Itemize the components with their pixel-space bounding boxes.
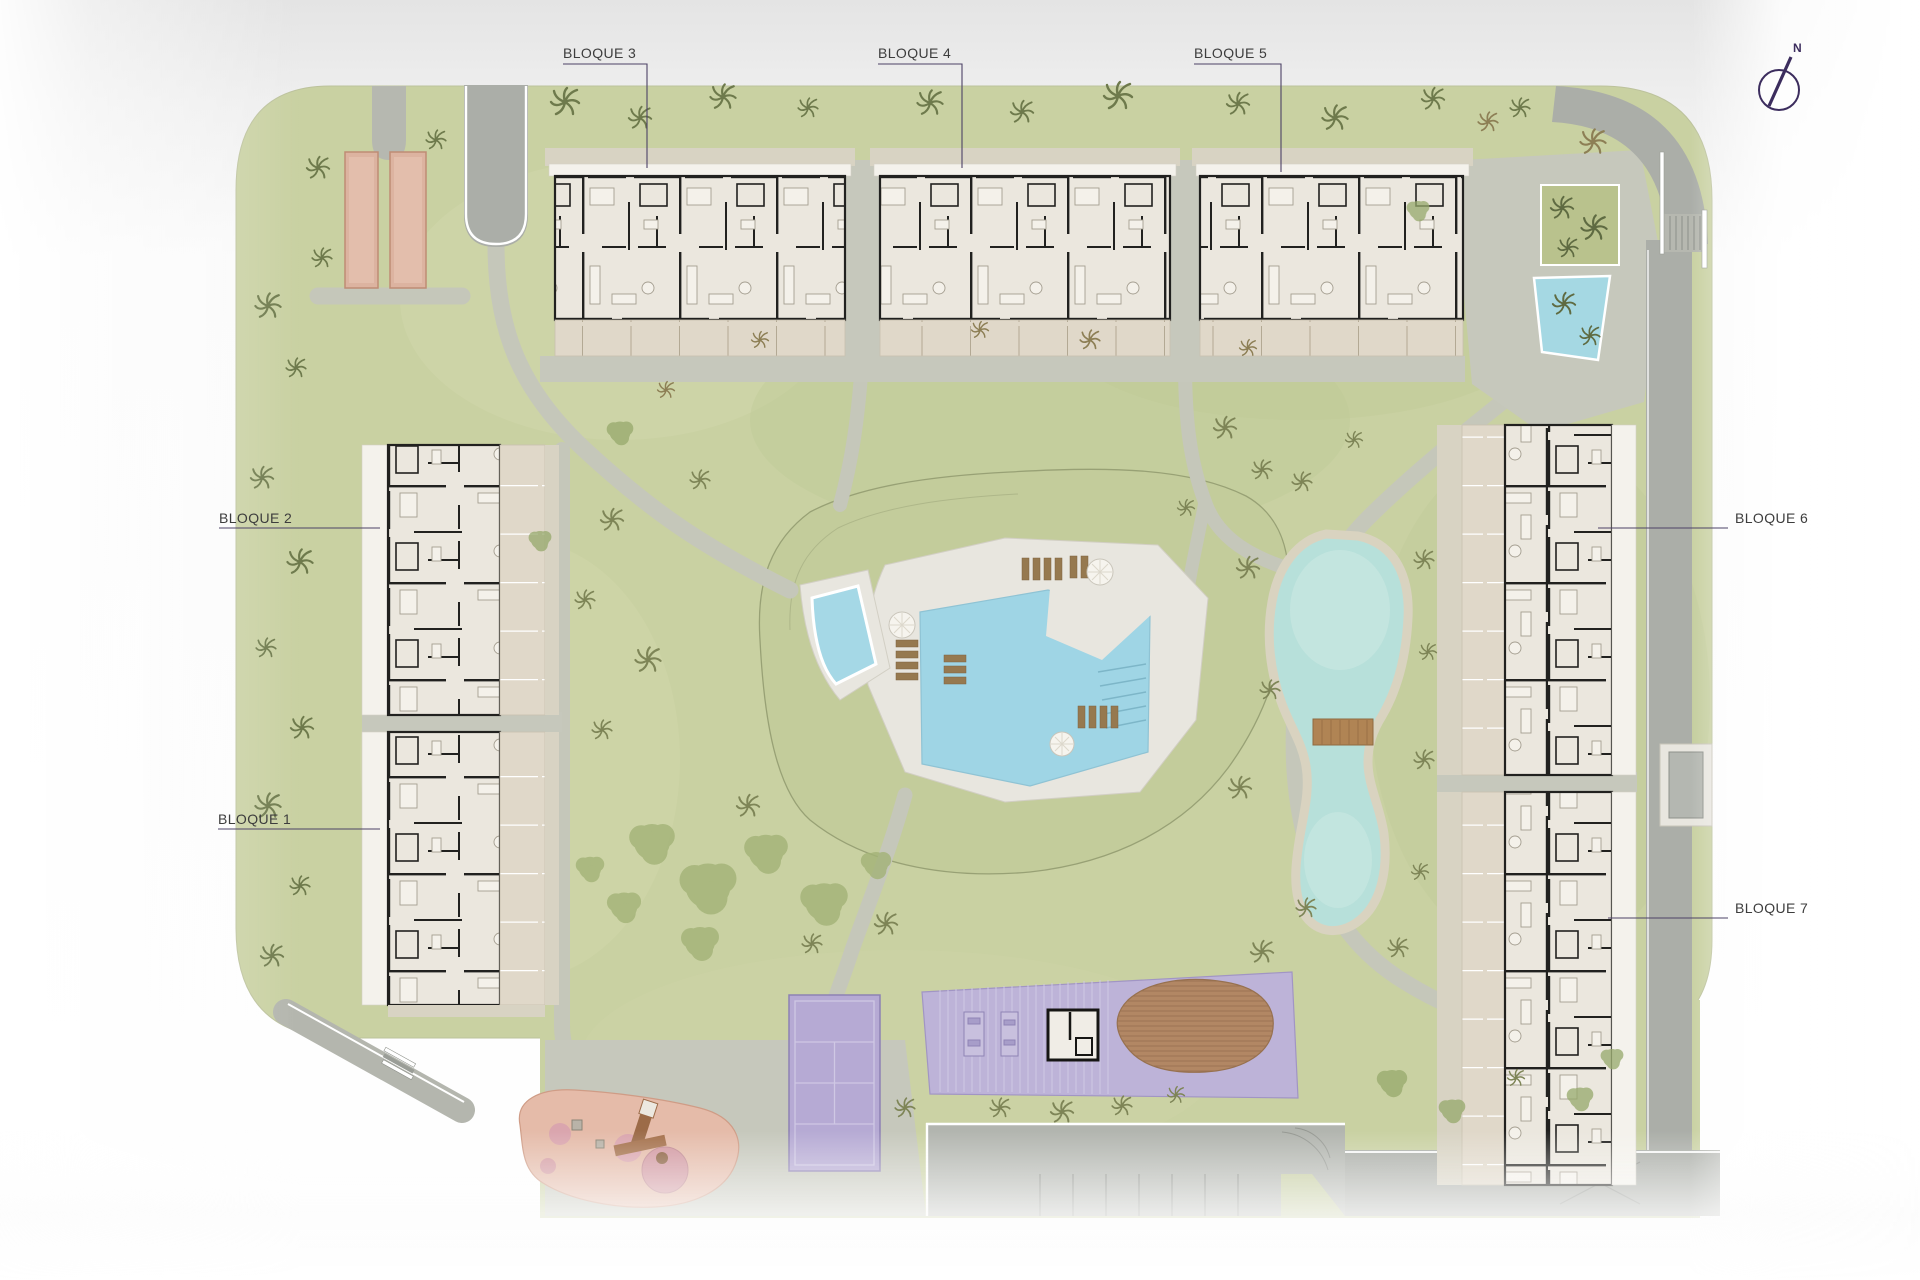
pergola-gym-zone (922, 972, 1298, 1098)
corner-water-feature (1534, 276, 1610, 360)
lake-bridge (1313, 719, 1373, 745)
left-fade (0, 0, 300, 1280)
site-plan-image: BLOQUE 3 BLOQUE 4 BLOQUE 5 BLOQUE 2 BLOQ… (0, 0, 1920, 1280)
label-bloque-1: BLOQUE 1 (218, 811, 291, 827)
building-block-1 (362, 732, 559, 1017)
label-bloque-7: BLOQUE 7 (1735, 900, 1808, 916)
building-block-7 (1437, 792, 1636, 1185)
north-label: N (1793, 41, 1802, 55)
right-fade (1690, 0, 1920, 1280)
wood-deck (1117, 979, 1273, 1072)
gap-block3-4 (845, 160, 880, 360)
north-entry-road (464, 85, 528, 247)
label-bloque-4: BLOQUE 4 (878, 45, 951, 61)
building-block-6 (1437, 425, 1636, 775)
building-block-5 (1192, 148, 1473, 356)
top-walkway (540, 356, 1465, 382)
label-bloque-3: BLOQUE 3 (563, 45, 636, 61)
master-plan-svg: BLOQUE 3 BLOQUE 4 BLOQUE 5 BLOQUE 2 BLOQ… (0, 0, 1920, 1280)
label-bloque-6: BLOQUE 6 (1735, 510, 1808, 526)
building-block-3 (545, 148, 855, 356)
building-block-2 (362, 445, 559, 715)
pool-house (1048, 1010, 1098, 1060)
label-bloque-2: BLOQUE 2 (219, 510, 292, 526)
gap-block4-5 (1170, 160, 1200, 360)
building-block-4 (870, 148, 1180, 356)
east-road (1646, 240, 1692, 1170)
bottom-fade (0, 1130, 1920, 1280)
label-bloque-5: BLOQUE 5 (1194, 45, 1267, 61)
